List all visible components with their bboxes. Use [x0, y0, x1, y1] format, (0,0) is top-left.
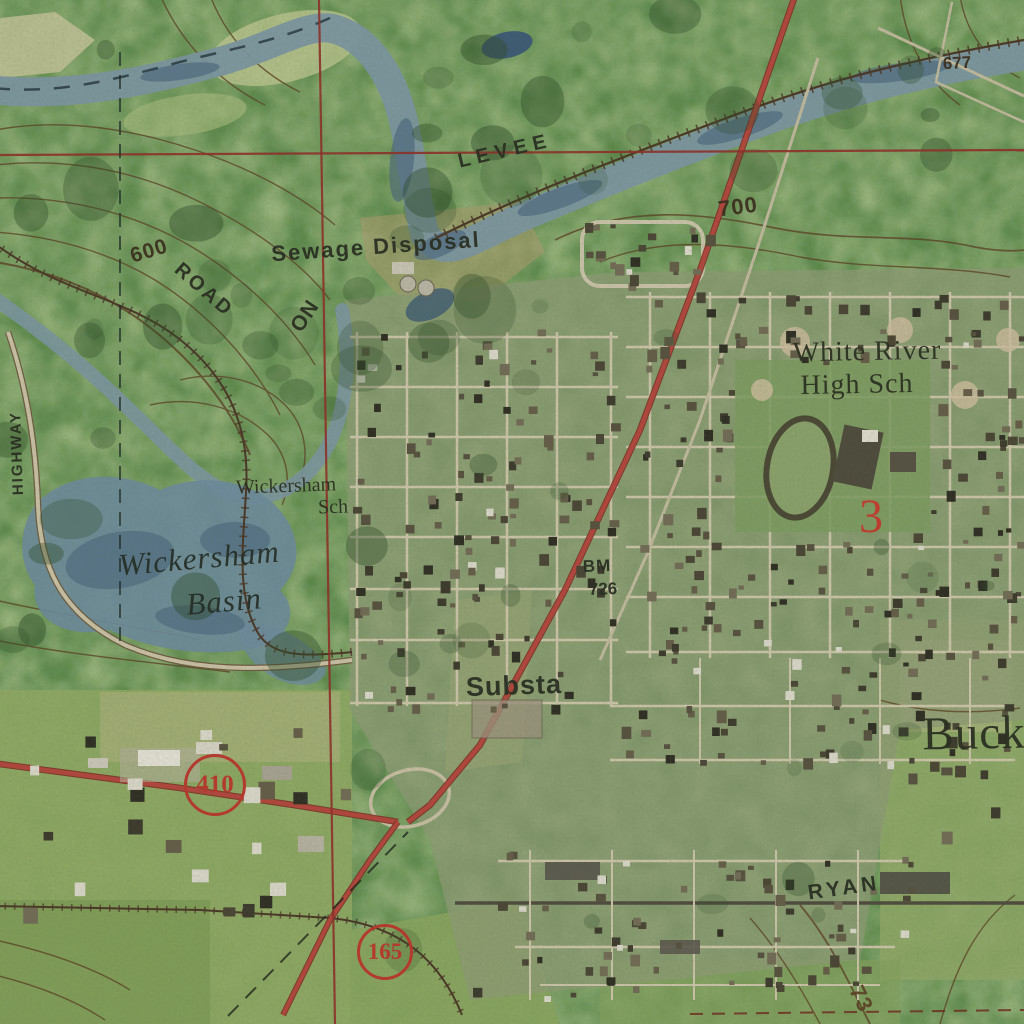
house — [786, 909, 794, 915]
tree-patch — [453, 622, 491, 658]
house — [691, 234, 698, 242]
house — [396, 699, 402, 706]
tree-patch — [412, 124, 443, 143]
tree-patch — [787, 759, 802, 776]
house — [917, 598, 925, 606]
house — [537, 957, 542, 963]
house — [365, 692, 373, 699]
house — [733, 630, 741, 636]
house — [244, 787, 261, 803]
house — [515, 457, 522, 464]
house — [941, 768, 952, 776]
tree-patch — [982, 581, 995, 591]
house — [771, 602, 777, 606]
house — [596, 251, 606, 258]
house — [486, 476, 492, 481]
house — [626, 750, 634, 758]
house — [687, 706, 693, 713]
house — [538, 329, 546, 336]
house — [880, 329, 886, 334]
house — [672, 644, 679, 652]
house — [453, 662, 460, 670]
house — [458, 471, 464, 478]
house — [776, 982, 783, 988]
house — [712, 543, 722, 551]
house — [717, 710, 727, 723]
tree-patch — [63, 157, 119, 221]
house — [526, 932, 535, 941]
house — [1000, 301, 1009, 310]
label-whs2: High Sch — [800, 370, 913, 400]
tree-patch — [40, 499, 103, 540]
house — [1008, 437, 1018, 445]
house — [1011, 616, 1017, 623]
house — [908, 862, 913, 867]
house — [972, 651, 979, 659]
house — [360, 607, 369, 615]
house — [631, 257, 641, 267]
house — [693, 269, 701, 275]
tree-patch — [408, 323, 450, 363]
house — [706, 602, 715, 610]
tree-patch — [169, 205, 223, 242]
house — [883, 725, 890, 734]
house — [832, 695, 841, 707]
house — [484, 344, 492, 350]
house — [396, 365, 402, 370]
house — [660, 347, 670, 359]
house — [586, 499, 592, 505]
house — [1002, 426, 1010, 432]
house — [560, 516, 570, 524]
tree-patch — [469, 454, 497, 476]
house — [687, 402, 697, 411]
house — [686, 556, 695, 563]
house — [807, 544, 815, 551]
house — [590, 521, 600, 529]
house — [219, 744, 228, 750]
house — [486, 509, 493, 517]
label-sec3: 3 — [859, 493, 883, 541]
house — [472, 594, 478, 600]
house — [438, 629, 445, 634]
house — [258, 782, 275, 800]
label-buck: Buck — [922, 710, 1024, 759]
house — [858, 686, 866, 691]
house — [473, 988, 482, 998]
tree-patch — [279, 379, 314, 406]
house — [938, 404, 948, 416]
house — [200, 730, 212, 740]
house — [437, 599, 446, 606]
house — [915, 636, 922, 641]
tree-patch — [822, 77, 863, 110]
house — [378, 640, 383, 645]
house — [414, 452, 420, 458]
house — [654, 967, 659, 974]
house — [608, 528, 616, 536]
house — [903, 896, 911, 902]
tree-patch — [265, 364, 291, 382]
house — [945, 337, 952, 342]
house — [365, 566, 373, 576]
house — [1006, 528, 1011, 532]
tree-patch — [454, 276, 517, 344]
house — [700, 760, 707, 766]
tree-patch — [313, 396, 347, 421]
house — [978, 451, 986, 460]
house — [941, 361, 950, 369]
house — [931, 510, 936, 514]
house — [663, 514, 673, 525]
house — [704, 617, 713, 625]
house — [666, 755, 675, 763]
house — [565, 692, 574, 699]
house — [509, 498, 518, 508]
house — [958, 474, 968, 482]
label-c700: 700 — [717, 194, 759, 221]
house — [593, 225, 600, 231]
house — [641, 730, 651, 737]
house — [609, 520, 619, 527]
house — [765, 978, 772, 987]
house — [664, 744, 670, 749]
house — [862, 709, 868, 714]
house — [796, 545, 805, 556]
house — [949, 309, 958, 320]
tree-patch — [388, 583, 412, 611]
house — [1003, 591, 1013, 599]
house — [474, 394, 482, 403]
house — [697, 508, 707, 519]
house — [572, 500, 582, 511]
house — [519, 906, 526, 912]
house — [391, 686, 396, 693]
house — [869, 672, 877, 677]
tree-patch — [143, 304, 182, 350]
house — [998, 530, 1003, 536]
house — [604, 952, 612, 960]
label-whs1: White River — [792, 337, 941, 368]
house — [803, 758, 813, 769]
house — [640, 545, 649, 553]
house — [479, 584, 485, 591]
house — [716, 448, 722, 453]
house — [484, 380, 489, 386]
house — [999, 435, 1005, 440]
house — [864, 730, 872, 740]
tree-patch — [501, 584, 521, 607]
house — [406, 687, 416, 695]
house — [681, 886, 687, 893]
house — [729, 588, 737, 598]
house — [955, 766, 966, 778]
tree-patch — [343, 277, 376, 305]
house — [981, 770, 989, 779]
house — [965, 582, 970, 588]
tree-patch — [898, 56, 924, 84]
house — [718, 753, 725, 759]
house — [501, 516, 508, 523]
house — [426, 439, 431, 445]
house — [672, 658, 678, 664]
house — [645, 452, 650, 458]
house — [224, 907, 236, 916]
house — [341, 789, 351, 800]
house — [738, 585, 743, 589]
house — [1008, 388, 1017, 398]
house — [374, 404, 381, 412]
house — [459, 394, 464, 400]
house — [586, 252, 594, 258]
house — [510, 514, 516, 518]
house — [788, 579, 794, 584]
house — [703, 532, 709, 540]
house — [764, 885, 773, 893]
label-substa: Substa — [466, 671, 563, 701]
house — [849, 718, 854, 724]
house — [353, 507, 362, 514]
house — [830, 955, 839, 967]
house — [647, 350, 657, 363]
house — [492, 646, 500, 656]
house — [963, 342, 968, 348]
label-wsch1: Wickersham — [236, 474, 337, 497]
house — [693, 668, 701, 674]
house — [786, 295, 796, 306]
house — [611, 423, 621, 431]
house — [780, 599, 787, 604]
map-canvas[interactable]: LEVEESewage Disposal600700677ROADONHIGHW… — [0, 0, 1024, 1024]
house — [839, 305, 848, 315]
house — [128, 819, 143, 834]
house — [963, 389, 972, 396]
house — [615, 264, 625, 275]
house — [719, 345, 727, 353]
house — [571, 993, 577, 998]
house — [128, 778, 143, 789]
house — [735, 872, 741, 879]
tree-patch — [532, 299, 549, 313]
house — [998, 486, 1005, 492]
tree-patch — [572, 21, 592, 42]
house — [596, 434, 604, 444]
house — [817, 725, 825, 731]
house — [648, 233, 656, 240]
house — [500, 364, 510, 375]
tree-patch — [921, 108, 940, 122]
house — [952, 365, 958, 370]
house — [503, 407, 510, 414]
house — [758, 953, 765, 959]
house — [435, 522, 442, 529]
house — [982, 676, 988, 681]
tree-patch — [14, 194, 49, 232]
house — [836, 647, 842, 652]
house — [887, 761, 894, 769]
house — [450, 603, 455, 607]
house — [717, 929, 723, 936]
house — [406, 525, 415, 534]
house — [842, 667, 850, 674]
house — [529, 406, 538, 413]
house — [774, 967, 782, 977]
house — [754, 620, 763, 629]
house — [617, 945, 623, 951]
house — [825, 861, 830, 867]
house — [675, 563, 684, 569]
tree-patch — [521, 76, 565, 127]
tree-patch — [389, 651, 420, 677]
house — [585, 223, 593, 233]
house — [739, 298, 746, 304]
house — [764, 640, 772, 646]
house — [44, 832, 54, 841]
house — [805, 306, 812, 315]
tree-patch — [730, 149, 778, 193]
house — [192, 869, 209, 882]
house — [498, 902, 508, 911]
house — [507, 853, 513, 861]
house — [595, 361, 605, 370]
house — [902, 857, 908, 864]
tree-patch — [892, 722, 922, 740]
house — [903, 663, 908, 667]
house — [785, 691, 794, 700]
house — [361, 515, 370, 525]
house — [998, 659, 1006, 669]
label-highway: HIGHWAY — [8, 411, 26, 496]
house — [544, 996, 551, 1002]
house — [735, 333, 740, 339]
house — [829, 934, 834, 938]
house — [252, 843, 261, 855]
house — [848, 948, 855, 955]
house — [664, 405, 670, 410]
house — [630, 275, 639, 286]
house — [400, 572, 408, 578]
house — [983, 311, 990, 320]
house — [994, 554, 1002, 561]
house — [930, 762, 940, 772]
house — [775, 895, 785, 906]
house — [455, 493, 462, 501]
house — [829, 753, 838, 763]
house — [75, 883, 86, 897]
house — [722, 416, 730, 424]
house — [595, 927, 603, 933]
house — [696, 550, 702, 557]
house — [729, 390, 735, 396]
house — [630, 955, 640, 967]
house — [465, 535, 471, 540]
house — [628, 945, 633, 952]
house — [428, 433, 435, 438]
house — [610, 224, 615, 228]
house — [623, 861, 630, 867]
house — [586, 967, 594, 976]
house — [908, 888, 915, 894]
house — [728, 719, 737, 726]
house — [622, 727, 632, 739]
house — [441, 581, 451, 593]
house — [428, 496, 436, 505]
house — [971, 332, 976, 336]
house — [918, 546, 924, 550]
house — [597, 875, 606, 884]
tree-patch — [920, 138, 953, 172]
house — [450, 569, 460, 578]
tree-patch — [906, 562, 938, 594]
house — [891, 609, 899, 617]
house — [1000, 440, 1007, 446]
house — [358, 479, 365, 485]
house — [549, 537, 557, 546]
house — [974, 528, 983, 537]
house — [963, 540, 968, 544]
house — [692, 527, 701, 535]
house — [935, 301, 942, 310]
tree-patch — [350, 749, 386, 791]
tree-patch — [653, 329, 678, 346]
house — [633, 918, 641, 926]
house — [454, 535, 464, 545]
house — [853, 620, 859, 627]
house — [991, 807, 1000, 818]
house — [491, 536, 499, 544]
tree-patch — [242, 331, 278, 359]
house — [524, 636, 529, 642]
house — [909, 758, 914, 764]
house — [293, 792, 307, 804]
house — [600, 966, 608, 976]
house — [489, 350, 498, 359]
house — [243, 904, 255, 917]
house — [544, 435, 554, 447]
house — [361, 654, 366, 660]
house — [510, 539, 516, 547]
house — [639, 245, 647, 252]
house — [692, 586, 698, 593]
house — [712, 727, 720, 736]
house — [610, 619, 617, 626]
tree-patch — [461, 35, 508, 66]
house — [867, 569, 873, 576]
house — [670, 262, 679, 272]
house — [468, 568, 475, 576]
tree-patch — [872, 642, 902, 665]
house — [838, 925, 844, 932]
tree-patch — [626, 124, 652, 147]
house — [587, 452, 594, 460]
house — [1015, 421, 1022, 429]
house — [607, 396, 616, 406]
tree-patch — [550, 482, 568, 500]
house — [610, 262, 616, 269]
house — [1019, 336, 1024, 341]
tree-patch — [265, 630, 322, 681]
tree-patch — [97, 40, 115, 59]
house — [424, 565, 433, 574]
house — [545, 600, 551, 607]
house — [836, 934, 846, 942]
tree-patch — [512, 369, 540, 395]
house — [522, 959, 529, 965]
label-basin2: Basin — [185, 582, 263, 619]
house — [23, 908, 38, 924]
house — [593, 372, 598, 376]
label-bm2: 726 — [589, 580, 618, 598]
